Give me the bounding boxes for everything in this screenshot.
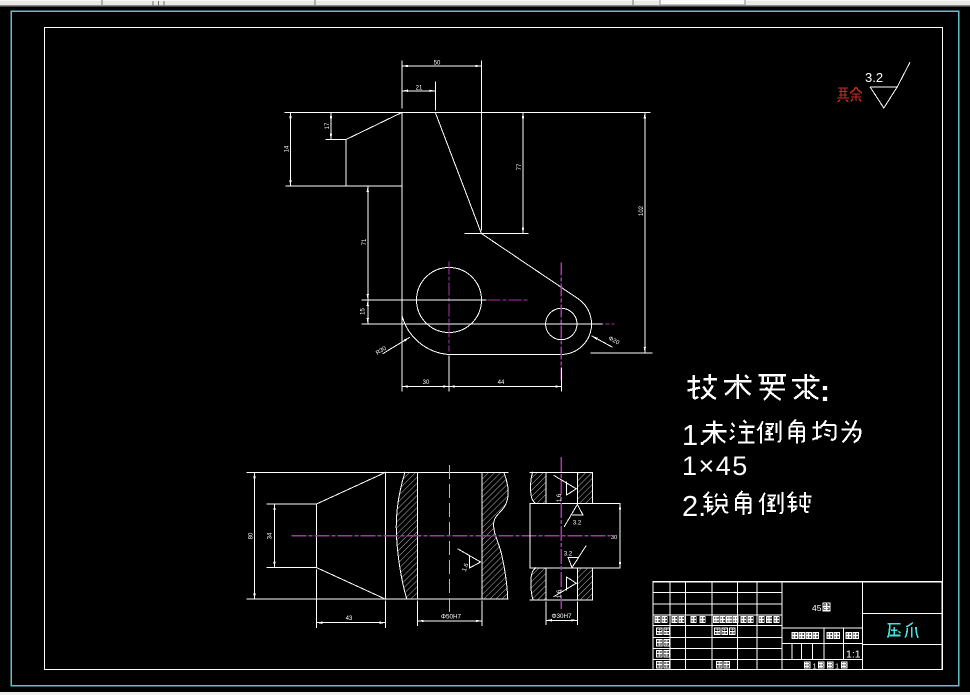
svg-text:71: 71 (362, 238, 368, 245)
svg-text:34: 34 (267, 532, 273, 539)
svg-text:43: 43 (346, 616, 353, 622)
svg-text:3.2: 3.2 (865, 70, 883, 85)
svg-text:15: 15 (360, 308, 366, 315)
svg-text:102: 102 (639, 205, 645, 216)
svg-text:1: 1 (835, 661, 839, 670)
svg-text:3.2: 3.2 (564, 552, 573, 558)
svg-text:45: 45 (812, 603, 822, 613)
svg-text:50: 50 (434, 61, 441, 67)
svg-text:1.6: 1.6 (557, 589, 563, 598)
svg-text:30: 30 (423, 380, 430, 386)
svg-text:1.: 1. (682, 420, 706, 452)
svg-text:1×45: 1×45 (682, 451, 749, 481)
svg-text:Φ50H7: Φ50H7 (441, 614, 462, 621)
svg-text:44: 44 (498, 380, 505, 386)
svg-text:21: 21 (416, 85, 423, 91)
svg-text:77: 77 (517, 163, 523, 170)
svg-text:1: 1 (813, 661, 817, 670)
svg-text:3.2: 3.2 (573, 521, 582, 527)
svg-text:1.6: 1.6 (557, 493, 563, 502)
svg-text:17: 17 (325, 122, 331, 129)
svg-text:2.: 2. (682, 491, 706, 523)
svg-text:30: 30 (611, 535, 617, 541)
svg-text:80: 80 (248, 532, 254, 539)
svg-text:1:1: 1:1 (846, 649, 861, 661)
svg-text:Φ30H7: Φ30H7 (551, 613, 572, 620)
svg-text:14: 14 (285, 145, 291, 152)
svg-text::: : (820, 375, 830, 408)
